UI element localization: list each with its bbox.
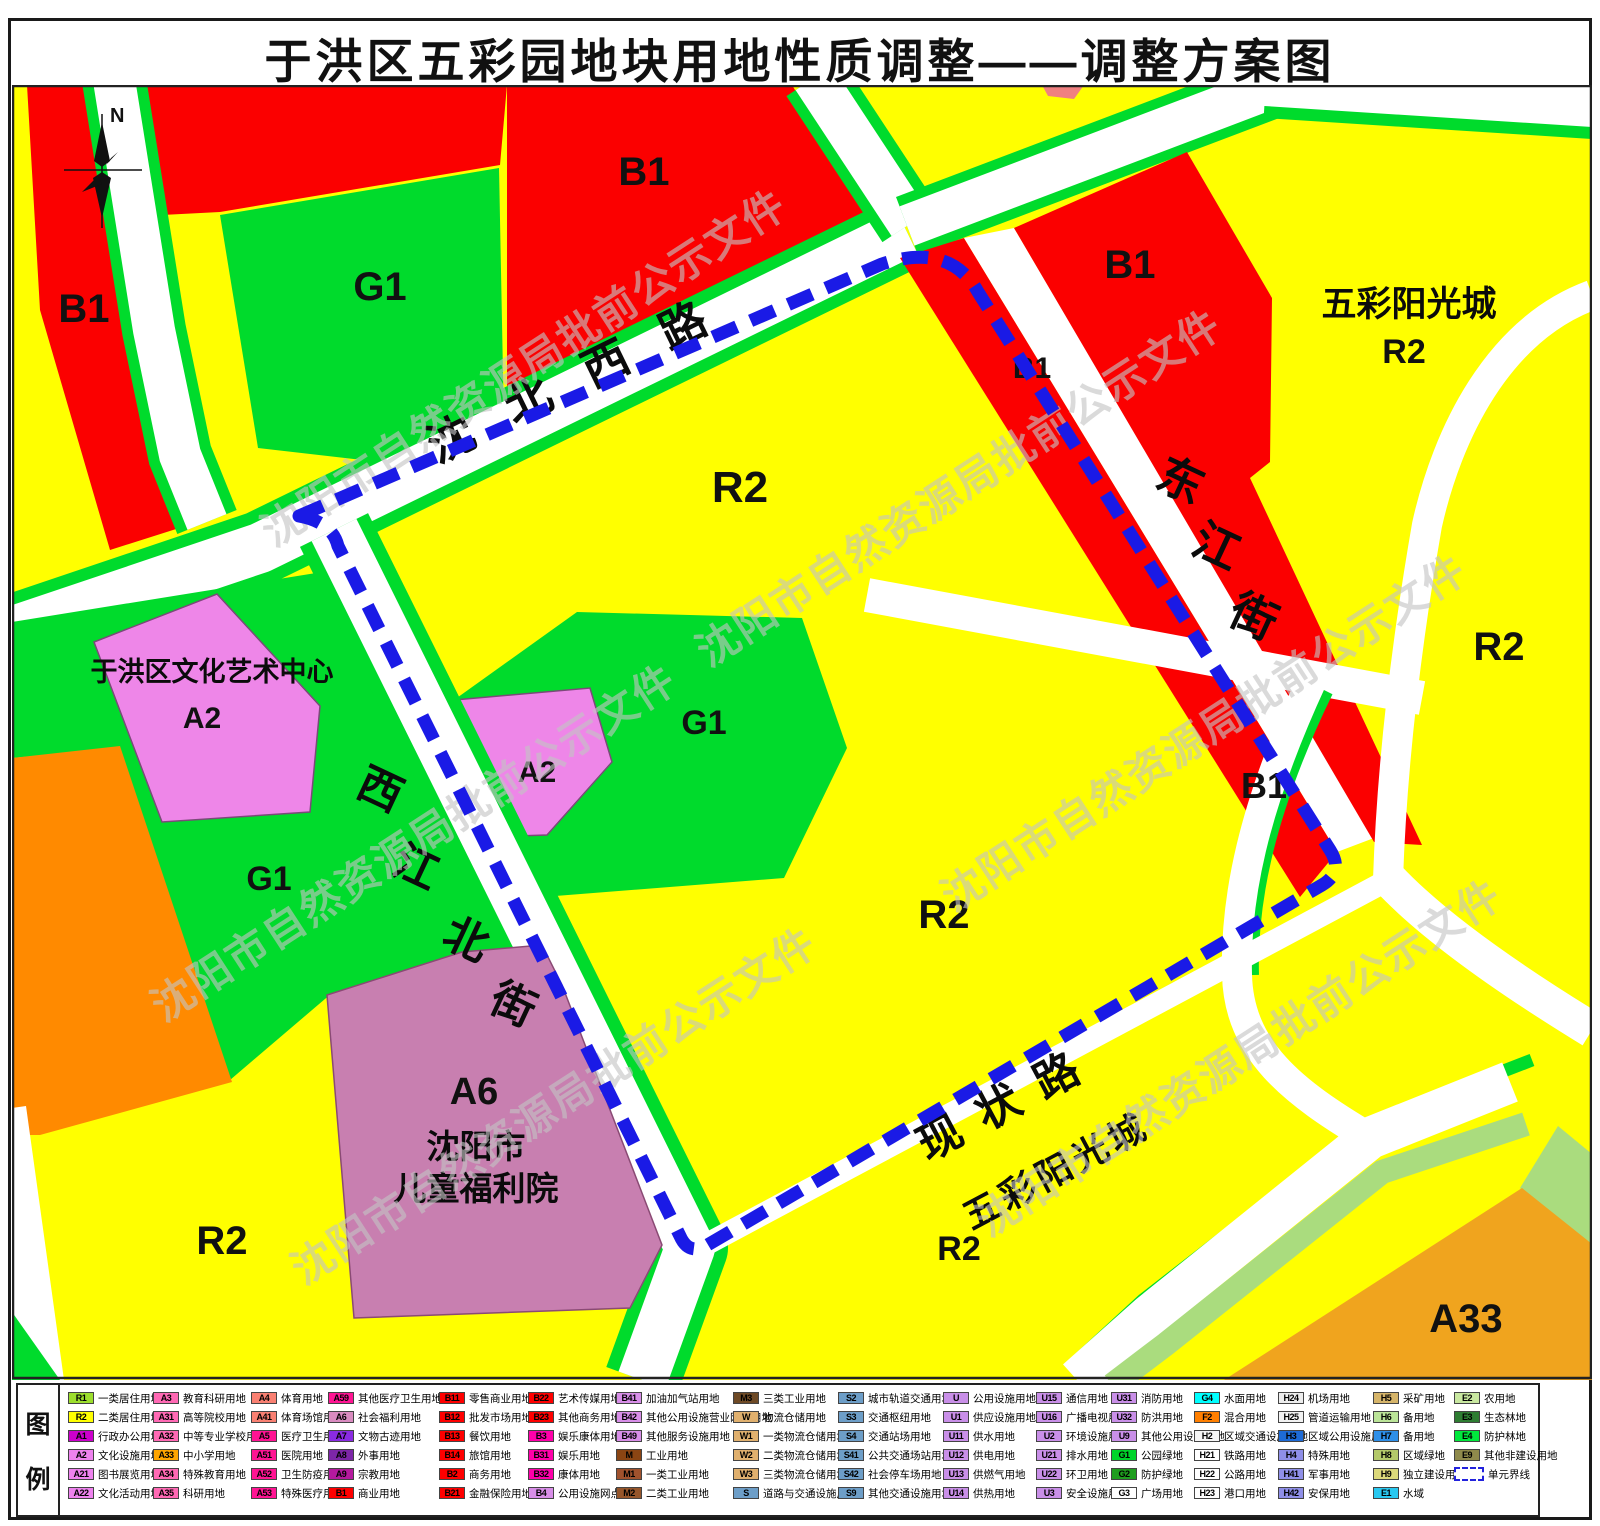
legend-swatch-B41: B41 xyxy=(616,1392,642,1404)
legend-swatch-H21: H21 xyxy=(1194,1449,1220,1461)
legend-swatch-A8: A8 xyxy=(328,1449,354,1461)
legend-entry-B13: B13餐饮用地 xyxy=(439,1429,528,1443)
legend-entry-label: 文物古迹用地 xyxy=(358,1429,421,1444)
legend-entry-S41: S41公共交通场站用地 xyxy=(838,1448,943,1462)
label-b1-topleft: B1 xyxy=(58,287,109,331)
legend-swatch-B31: B31 xyxy=(528,1449,554,1461)
legend-entry-A8: A8外事用地 xyxy=(328,1448,439,1462)
legend-entry-M1: M1一类工业用地 xyxy=(616,1467,733,1481)
label-g1-topleft: G1 xyxy=(353,265,406,309)
label-b1-ne: B1 xyxy=(1104,243,1155,287)
legend-grid: R1一类居住用地R2二类居住用地A1行政办公用地A2文化设施用地A21图书展览用… xyxy=(60,1385,1538,1515)
legend-entry-label: 消防用地 xyxy=(1141,1391,1183,1406)
planning-map: B1 G1 B1 R2 B1 B1 五彩阳光城 R2 R2 B1 R2 R2 A… xyxy=(12,85,1592,1380)
legend-entry-H4: H4特殊用地 xyxy=(1278,1448,1373,1462)
legend-entry-label: 高等院校用地 xyxy=(183,1410,246,1425)
legend-entry-label: 交通站场用地 xyxy=(868,1429,931,1444)
legend-entry-label: 特殊教育用地 xyxy=(183,1467,246,1482)
legend-entry-label: 社会福利用地 xyxy=(358,1410,421,1425)
legend-entry-A22: A22文化活动用地 xyxy=(68,1486,153,1500)
legend-entry-W1: W1一类物流仓储用地 xyxy=(733,1429,838,1443)
legend-swatch-H4: H4 xyxy=(1278,1449,1304,1461)
legend-entry-E2: E2农用地 xyxy=(1454,1391,1538,1405)
legend-column-11: U15通信用地U16广播电视用地U2环境设施用地U21排水用地U22环卫用地U3… xyxy=(1036,1391,1111,1509)
legend-entry-U11: U11供水用地 xyxy=(943,1429,1036,1443)
legend-entry-S2: S2城市轨道交通用地 xyxy=(838,1391,943,1405)
legend-entry-label: 一类物流仓储用地 xyxy=(763,1429,847,1444)
legend-swatch-H42: H42 xyxy=(1278,1487,1304,1499)
legend-swatch-A21: A21 xyxy=(68,1468,94,1480)
legend-entry-label: 铁路用地 xyxy=(1224,1448,1266,1463)
legend-entry-H8: H8区域绿地 xyxy=(1373,1448,1454,1462)
legend-entry-A5: A5医疗卫生用地 xyxy=(251,1429,328,1443)
legend-swatch-A7: A7 xyxy=(328,1430,354,1442)
legend-entry-label: 其他交通设施用地 xyxy=(868,1486,952,1501)
legend-entry-label: 单元界线 xyxy=(1488,1467,1530,1482)
legend-swatch-E1: E1 xyxy=(1373,1487,1399,1499)
legend-entry-U31: U31消防用地 xyxy=(1111,1391,1194,1405)
legend-swatch-A2: A2 xyxy=(68,1449,94,1461)
legend-swatch-A41: A41 xyxy=(251,1411,277,1423)
legend-entry-B41: B41加油加气站用地 xyxy=(616,1391,733,1405)
legend-swatch-U3: U3 xyxy=(1036,1487,1062,1499)
legend-entry-label: 军事用地 xyxy=(1308,1467,1350,1482)
legend-swatch-M: M xyxy=(616,1449,642,1461)
legend-entry-H21: H21铁路用地 xyxy=(1194,1448,1278,1462)
legend-entry-label: 其他服务设施用地 xyxy=(646,1429,730,1444)
legend-entry-label: 管道运输用地 xyxy=(1308,1410,1371,1425)
label-r2-southwest: R2 xyxy=(196,1219,247,1263)
legend-entry-label: 商业用地 xyxy=(358,1486,400,1501)
legend-entry-A3: A3教育科研用地 xyxy=(153,1391,251,1405)
legend-swatch-B23: B23 xyxy=(528,1411,554,1423)
legend-entry-label: 中小学用地 xyxy=(183,1448,236,1463)
legend-entry-S4: S4交通站场用地 xyxy=(838,1429,943,1443)
legend-entry-label: 物流仓储用地 xyxy=(763,1410,826,1425)
legend-column-8: M3三类工业用地W物流仓储用地W1一类物流仓储用地W2二类物流仓储用地W3三类物… xyxy=(733,1391,838,1509)
legend-entry-H42: H42安保用地 xyxy=(1278,1486,1373,1500)
legend-entry-label: 机场用地 xyxy=(1308,1391,1350,1406)
legend-entry-H24: H24机场用地 xyxy=(1278,1391,1373,1405)
legend-entry-label: 零售商业用地 xyxy=(469,1391,532,1406)
legend-swatch-B49: B49 xyxy=(616,1430,642,1442)
legend-swatch-H7: H7 xyxy=(1373,1430,1399,1442)
legend-entry-H5: H5采矿用地 xyxy=(1373,1391,1454,1405)
legend-entry-R2: R2二类居住用地 xyxy=(68,1410,153,1424)
legend-entry-A2: A2文化设施用地 xyxy=(68,1448,153,1462)
label-g1-center: G1 xyxy=(681,704,726,742)
legend-swatch-M1: M1 xyxy=(616,1468,642,1480)
legend-swatch-B1: B1 xyxy=(328,1487,354,1499)
legend-entry-label: 工业用地 xyxy=(646,1448,688,1463)
legend-column-4: A59其他医疗卫生用地A6社会福利用地A7文物古迹用地A8外事用地A9宗教用地B… xyxy=(328,1391,439,1509)
legend-swatch-U22: U22 xyxy=(1036,1468,1062,1480)
legend-entry-E9: E9其他非建设用地 xyxy=(1454,1448,1538,1462)
legend-entry-label: 供电用地 xyxy=(973,1448,1015,1463)
legend-swatch-B13: B13 xyxy=(439,1430,465,1442)
legend-entry-label: 金融保险用地 xyxy=(469,1486,532,1501)
legend-swatch-M3: M3 xyxy=(733,1392,759,1404)
legend-swatch-A34: A34 xyxy=(153,1468,179,1480)
label-a33: A33 xyxy=(1429,1297,1502,1341)
legend-entry-H7: H7备用地 xyxy=(1373,1429,1454,1443)
legend-swatch-G4: G4 xyxy=(1194,1392,1220,1404)
legend-entry-label: 二类物流仓储用地 xyxy=(763,1448,847,1463)
legend-entry-A33: A33中小学用地 xyxy=(153,1448,251,1462)
legend-swatch-W1: W1 xyxy=(733,1430,759,1442)
legend-entry-A9: A9宗教用地 xyxy=(328,1467,439,1481)
legend-entry-label: 交通枢纽用地 xyxy=(868,1410,931,1425)
legend-swatch-B11: B11 xyxy=(439,1392,465,1404)
legend-swatch-W3: W3 xyxy=(733,1468,759,1480)
legend-swatch-H6: H6 xyxy=(1373,1411,1399,1423)
legend-entry-label: 供热用地 xyxy=(973,1486,1015,1501)
label-g1-west: G1 xyxy=(246,860,291,898)
legend-entry-H23: H23港口用地 xyxy=(1194,1486,1278,1500)
legend-entry-label: 旅馆用地 xyxy=(469,1448,511,1463)
legend-entry-H9: H9独立建设用地 xyxy=(1373,1467,1454,1481)
legend-entry-H25: H25管道运输用地 xyxy=(1278,1410,1373,1424)
legend-entry-label: 广场用地 xyxy=(1141,1486,1183,1501)
legend-entry-label: 二类居住用地 xyxy=(98,1410,161,1425)
legend-entry-S9: S9其他交通设施用地 xyxy=(838,1486,943,1500)
legend-entry-B22: B22艺术传媒用地 xyxy=(528,1391,616,1405)
legend-swatch-U: U xyxy=(943,1392,969,1404)
legend-swatch-R1: R1 xyxy=(68,1392,94,1404)
legend-entry-H41: H41军事用地 xyxy=(1278,1467,1373,1481)
legend-column-12: U31消防用地U32防洪用地U9其他公用设施用地G1公园绿地G2防护绿地G3广场… xyxy=(1111,1391,1194,1509)
legend-entry-U: U公用设施用地 xyxy=(943,1391,1036,1405)
legend-entry-U21: U21排水用地 xyxy=(1036,1448,1111,1462)
legend-entry-label: 供应设施用地 xyxy=(973,1410,1036,1425)
page-title: 于洪区五彩园地块用地性质调整——调整方案图 xyxy=(11,23,1589,92)
legend-entry-label: 行政办公用地 xyxy=(98,1429,161,1444)
legend-entry-label: 餐饮用地 xyxy=(469,1429,511,1444)
legend-swatch-H22: H22 xyxy=(1194,1468,1220,1480)
legend-entry-A41: A41体育场馆用地 xyxy=(251,1410,328,1424)
legend-entry-A1: A1行政办公用地 xyxy=(68,1429,153,1443)
legend-entry-label: 康体用地 xyxy=(558,1467,600,1482)
legend-entry-label: 一类居住用地 xyxy=(98,1391,161,1406)
legend-entry-H6: H6备用地 xyxy=(1373,1410,1454,1424)
legend-swatch-E2: E2 xyxy=(1454,1392,1480,1404)
legend-swatch-S41: S41 xyxy=(838,1449,864,1461)
label-a6: A6 xyxy=(450,1071,499,1113)
legend-label-li: 例 xyxy=(25,1460,50,1496)
legend-entry-U12: U12供电用地 xyxy=(943,1448,1036,1462)
legend-entry-A35: A35科研用地 xyxy=(153,1486,251,1500)
legend-entry-S: S道路与交通设施用地 xyxy=(733,1486,838,1500)
legend-swatch-B14: B14 xyxy=(439,1449,465,1461)
legend-entry-B11: B11零售商业用地 xyxy=(439,1391,528,1405)
legend-entry-A51: A51医院用地 xyxy=(251,1448,328,1462)
legend-swatch-W2: W2 xyxy=(733,1449,759,1461)
legend-entry-label: 区域绿地 xyxy=(1403,1448,1445,1463)
legend-swatch-B4: B4 xyxy=(528,1487,554,1499)
north-label: N xyxy=(110,105,124,127)
legend-entry-unit-boundary: 单元界线 xyxy=(1454,1467,1538,1481)
legend-swatch-U11: U11 xyxy=(943,1430,969,1442)
label-r2-east: R2 xyxy=(1473,625,1524,669)
legend-swatch-B12: B12 xyxy=(439,1411,465,1423)
legend-swatch-H8: H8 xyxy=(1373,1449,1399,1461)
legend-entry-G3: G3广场用地 xyxy=(1111,1486,1194,1500)
legend-swatch-G2: G2 xyxy=(1111,1468,1137,1480)
legend-entry-R1: R1一类居住用地 xyxy=(68,1391,153,1405)
legend-entry-label: 港口用地 xyxy=(1224,1486,1266,1501)
label-a2-west: A2 xyxy=(183,702,221,735)
legend-entry-W3: W3三类物流仓储用地 xyxy=(733,1467,838,1481)
legend-entry-label: 三类物流仓储用地 xyxy=(763,1467,847,1482)
legend-entry-label: 采矿用地 xyxy=(1403,1391,1445,1406)
legend-swatch-R2: R2 xyxy=(68,1411,94,1423)
legend-swatch-U12: U12 xyxy=(943,1449,969,1461)
legend-entry-label: 三类工业用地 xyxy=(763,1391,826,1406)
legend-swatch-E3: E3 xyxy=(1454,1411,1480,1423)
legend-entry-label: 其他非建设用地 xyxy=(1484,1448,1558,1463)
legend-entry-U14: U14供热用地 xyxy=(943,1486,1036,1500)
label-sunshine-city-ne: 五彩阳光城 xyxy=(1321,285,1496,324)
legend-swatch-A59: A59 xyxy=(328,1392,354,1404)
legend-entry-W2: W2二类物流仓储用地 xyxy=(733,1448,838,1462)
legend-swatch-G3: G3 xyxy=(1111,1487,1137,1499)
legend-swatch-B21: B21 xyxy=(439,1487,465,1499)
legend-entry-H3: H3区域公用设施用地 xyxy=(1278,1429,1373,1443)
legend-swatch-H5: H5 xyxy=(1373,1392,1399,1404)
legend-swatch-H41: H41 xyxy=(1278,1468,1304,1480)
legend-swatch-U31: U31 xyxy=(1111,1392,1137,1404)
legend-entry-H22: H22公路用地 xyxy=(1194,1467,1278,1481)
legend-swatch-S2: S2 xyxy=(838,1392,864,1404)
legend-entry-label: 排水用地 xyxy=(1066,1448,1108,1463)
legend-entry-label: 水面用地 xyxy=(1224,1391,1266,1406)
legend-entry-label: 城市轨道交通用地 xyxy=(868,1391,952,1406)
legend-column-3: A4体育用地A41体育场馆用地A5医疗卫生用地A51医院用地A52卫生防疫用地A… xyxy=(251,1391,328,1509)
legend-entry-label: 特殊用地 xyxy=(1308,1448,1350,1463)
legend-entry-A32: A32中等专业学校用地 xyxy=(153,1429,251,1443)
legend-entry-label: 娱乐康体用地 xyxy=(558,1429,621,1444)
legend-entry-label: 防护林地 xyxy=(1484,1429,1526,1444)
legend-entry-U13: U13供燃气用地 xyxy=(943,1467,1036,1481)
legend-swatch-S: S xyxy=(733,1487,759,1499)
legend-entry-A7: A7文物古迹用地 xyxy=(328,1429,439,1443)
legend-entry-F2: F2混合用地 xyxy=(1194,1410,1278,1424)
legend-swatch-U1: U1 xyxy=(943,1411,969,1423)
legend-entry-B1: B1商业用地 xyxy=(328,1486,439,1500)
legend-label-tu: 图 xyxy=(25,1405,50,1441)
legend-entry-label: 一类工业用地 xyxy=(646,1467,709,1482)
legend-column-5: B11零售商业用地B12批发市场用地B13餐饮用地B14旅馆用地B2商务用地B2… xyxy=(439,1391,528,1509)
legend-entry-label: 二类工业用地 xyxy=(646,1486,709,1501)
legend-entry-label: 文化活动用地 xyxy=(98,1486,161,1501)
legend-entry-B21: B21金融保险用地 xyxy=(439,1486,528,1500)
legend-column-6: B22艺术传媒用地B23其他商务用地B3娱乐康体用地B31娱乐用地B32康体用地… xyxy=(528,1391,616,1509)
legend-swatch-B2: B2 xyxy=(439,1468,465,1480)
legend-entry-label: 环卫用地 xyxy=(1066,1467,1108,1482)
legend-column-13: G4水面用地F2混合用地H2区域交通设施用地H21铁路用地H22公路用地H23港… xyxy=(1194,1391,1278,1509)
legend-entry-label: 其他商务用地 xyxy=(558,1410,621,1425)
legend-entry-A52: A52卫生防疫用地 xyxy=(251,1467,328,1481)
legend-entry-label: 图书展览用地 xyxy=(98,1467,161,1482)
legend-entry-A21: A21图书展览用地 xyxy=(68,1467,153,1481)
legend-column-7: B41加油加气站用地B42其他公用设施营业网点用地B49其他服务设施用地M工业用… xyxy=(616,1391,733,1509)
legend-entry-label: 医院用地 xyxy=(281,1448,323,1463)
legend-entry-label: 教育科研用地 xyxy=(183,1391,246,1406)
legend-swatch-H25: H25 xyxy=(1278,1411,1304,1423)
legend-swatch-W: W xyxy=(733,1411,759,1423)
legend-swatch-U21: U21 xyxy=(1036,1449,1062,1461)
legend-entry-S3: S3交通枢纽用地 xyxy=(838,1410,943,1424)
legend-swatch-A35: A35 xyxy=(153,1487,179,1499)
legend-entry-G1: G1公园绿地 xyxy=(1111,1448,1194,1462)
legend-swatch-B3: B3 xyxy=(528,1430,554,1442)
legend-entry-W: W物流仓储用地 xyxy=(733,1410,838,1424)
legend-entry-A31: A31高等院校用地 xyxy=(153,1410,251,1424)
legend-entry-M: M工业用地 xyxy=(616,1448,733,1462)
legend-entry-label: 社会停车场用地 xyxy=(868,1467,942,1482)
legend-column-1: R1一类居住用地R2二类居住用地A1行政办公用地A2文化设施用地A21图书展览用… xyxy=(68,1391,153,1509)
legend-swatch-unit-boundary xyxy=(1454,1467,1484,1481)
legend-entry-label: 混合用地 xyxy=(1224,1410,1266,1425)
legend-swatch-A52: A52 xyxy=(251,1468,277,1480)
legend-swatch-M2: M2 xyxy=(616,1487,642,1499)
legend-swatch-A3: A3 xyxy=(153,1392,179,1404)
legend-entry-B4: B4公用设施网点用地 xyxy=(528,1486,616,1500)
legend-column-10: U公用设施用地U1供应设施用地U11供水用地U12供电用地U13供燃气用地U14… xyxy=(943,1391,1036,1509)
legend-entry-A59: A59其他医疗卫生用地 xyxy=(328,1391,439,1405)
legend-swatch-A53: A53 xyxy=(251,1487,277,1499)
legend-swatch-A33: A33 xyxy=(153,1449,179,1461)
legend-swatch-U13: U13 xyxy=(943,1468,969,1480)
legend-entry-label: 安保用地 xyxy=(1308,1486,1350,1501)
legend-entry-A34: A34特殊教育用地 xyxy=(153,1467,251,1481)
legend-side-label: 图 例 xyxy=(18,1385,60,1515)
legend-entry-label: 娱乐用地 xyxy=(558,1448,600,1463)
legend-swatch-F2: F2 xyxy=(1194,1411,1220,1423)
legend-entry-label: 供燃气用地 xyxy=(973,1467,1026,1482)
legend-entry-E3: E3生态林地 xyxy=(1454,1410,1538,1424)
legend-entry-B42: B42其他公用设施营业网点用地 xyxy=(616,1410,733,1424)
legend-entry-U22: U22环卫用地 xyxy=(1036,1467,1111,1481)
legend-swatch-U15: U15 xyxy=(1036,1392,1062,1404)
legend-entry-B14: B14旅馆用地 xyxy=(439,1448,528,1462)
legend-entry-label: 防洪用地 xyxy=(1141,1410,1183,1425)
legend-entry-label: 公共交通场站用地 xyxy=(868,1448,952,1463)
legend-swatch-A6: A6 xyxy=(328,1411,354,1423)
legend-entry-G4: G4水面用地 xyxy=(1194,1391,1278,1405)
legend-entry-label: 艺术传媒用地 xyxy=(558,1391,621,1406)
label-r2-ne: R2 xyxy=(1382,333,1425,371)
legend-swatch-S3: S3 xyxy=(838,1411,864,1423)
legend-entry-label: 备用地 xyxy=(1403,1429,1435,1444)
legend-entry-label: 其他医疗卫生用地 xyxy=(358,1391,442,1406)
legend-entry-A6: A6社会福利用地 xyxy=(328,1410,439,1424)
legend-entry-S42: S42社会停车场用地 xyxy=(838,1467,943,1481)
legend-entry-label: 农用地 xyxy=(1484,1391,1516,1406)
legend-swatch-S4: S4 xyxy=(838,1430,864,1442)
legend-entry-label: 批发市场用地 xyxy=(469,1410,532,1425)
legend-swatch-A22: A22 xyxy=(68,1487,94,1499)
legend-column-15: H5采矿用地H6备用地H7备用地H8区域绿地H9独立建设用地E1水域 xyxy=(1373,1391,1454,1509)
legend-entry-label: 公用设施用地 xyxy=(973,1391,1036,1406)
legend-entry-A4: A4体育用地 xyxy=(251,1391,328,1405)
legend-swatch-U2: U2 xyxy=(1036,1430,1062,1442)
label-r2-center: R2 xyxy=(712,463,768,512)
legend-column-9: S2城市轨道交通用地S3交通枢纽用地S4交通站场用地S41公共交通场站用地S42… xyxy=(838,1391,943,1509)
legend-swatch-H24: H24 xyxy=(1278,1392,1304,1404)
legend-entry-B49: B49其他服务设施用地 xyxy=(616,1429,733,1443)
legend-column-16: E2农用地E3生态林地E4防护林地E9其他非建设用地单元界线 xyxy=(1454,1391,1538,1509)
legend-entry-label: 供水用地 xyxy=(973,1429,1015,1444)
legend-swatch-G1: G1 xyxy=(1111,1449,1137,1461)
legend-column-14: H24机场用地H25管道运输用地H3区域公用设施用地H4特殊用地H41军事用地H… xyxy=(1278,1391,1373,1509)
legend-swatch-U9: U9 xyxy=(1111,1430,1137,1442)
label-b1-dongjiang-s: B1 xyxy=(1241,765,1287,806)
legend-entry-label: 体育用地 xyxy=(281,1391,323,1406)
legend-panel: 图 例 R1一类居住用地R2二类居住用地A1行政办公用地A2文化设施用地A21图… xyxy=(16,1383,1540,1517)
legend-entry-U2: U2环境设施用地 xyxy=(1036,1429,1111,1443)
page-frame: 于洪区五彩园地块用地性质调整——调整方案图 xyxy=(8,18,1592,1520)
legend-entry-U16: U16广播电视用地 xyxy=(1036,1410,1111,1424)
legend-entry-U9: U9其他公用设施用地 xyxy=(1111,1429,1194,1443)
legend-entry-label: 公园绿地 xyxy=(1141,1448,1183,1463)
legend-swatch-A9: A9 xyxy=(328,1468,354,1480)
legend-entry-label: 外事用地 xyxy=(358,1448,400,1463)
legend-swatch-B32: B32 xyxy=(528,1468,554,1480)
legend-entry-label: 备用地 xyxy=(1403,1410,1435,1425)
legend-entry-U3: U3安全设施用地 xyxy=(1036,1486,1111,1500)
legend-swatch-E4: E4 xyxy=(1454,1430,1480,1442)
legend-swatch-A1: A1 xyxy=(68,1430,94,1442)
legend-entry-M2: M2二类工业用地 xyxy=(616,1486,733,1500)
legend-swatch-U16: U16 xyxy=(1036,1411,1062,1423)
legend-swatch-E9: E9 xyxy=(1454,1449,1480,1461)
legend-swatch-A51: A51 xyxy=(251,1449,277,1461)
legend-swatch-B42: B42 xyxy=(616,1411,642,1423)
legend-entry-B3: B3娱乐康体用地 xyxy=(528,1429,616,1443)
legend-entry-E4: E4防护林地 xyxy=(1454,1429,1538,1443)
legend-entry-U15: U15通信用地 xyxy=(1036,1391,1111,1405)
legend-entry-B12: B12批发市场用地 xyxy=(439,1410,528,1424)
legend-entry-B2: B2商务用地 xyxy=(439,1467,528,1481)
legend-swatch-B22: B22 xyxy=(528,1392,554,1404)
legend-swatch-A31: A31 xyxy=(153,1411,179,1423)
legend-entry-U32: U32防洪用地 xyxy=(1111,1410,1194,1424)
legend-swatch-S9: S9 xyxy=(838,1487,864,1499)
legend-entry-E1: E1水域 xyxy=(1373,1486,1454,1500)
legend-swatch-U14: U14 xyxy=(943,1487,969,1499)
legend-entry-B23: B23其他商务用地 xyxy=(528,1410,616,1424)
legend-entry-label: 商务用地 xyxy=(469,1467,511,1482)
legend-entry-label: 公路用地 xyxy=(1224,1467,1266,1482)
legend-swatch-S42: S42 xyxy=(838,1468,864,1480)
legend-swatch-A32: A32 xyxy=(153,1430,179,1442)
legend-entry-label: 水域 xyxy=(1403,1486,1424,1501)
legend-entry-label: 防护绿地 xyxy=(1141,1467,1183,1482)
legend-entry-label: 宗教用地 xyxy=(358,1467,400,1482)
legend-entry-B31: B31娱乐用地 xyxy=(528,1448,616,1462)
legend-swatch-U32: U32 xyxy=(1111,1411,1137,1423)
legend-entry-M3: M3三类工业用地 xyxy=(733,1391,838,1405)
legend-entry-label: 加油加气站用地 xyxy=(646,1391,720,1406)
legend-swatch-H3: H3 xyxy=(1278,1430,1304,1442)
legend-swatch-H23: H23 xyxy=(1194,1487,1220,1499)
legend-column-2: A3教育科研用地A31高等院校用地A32中等专业学校用地A33中小学用地A34特… xyxy=(153,1391,251,1509)
legend-entry-H2: H2区域交通设施用地 xyxy=(1194,1429,1278,1443)
legend-entry-B32: B32康体用地 xyxy=(528,1467,616,1481)
legend-swatch-A5: A5 xyxy=(251,1430,277,1442)
legend-entry-A53: A53特殊医疗用地 xyxy=(251,1486,328,1500)
